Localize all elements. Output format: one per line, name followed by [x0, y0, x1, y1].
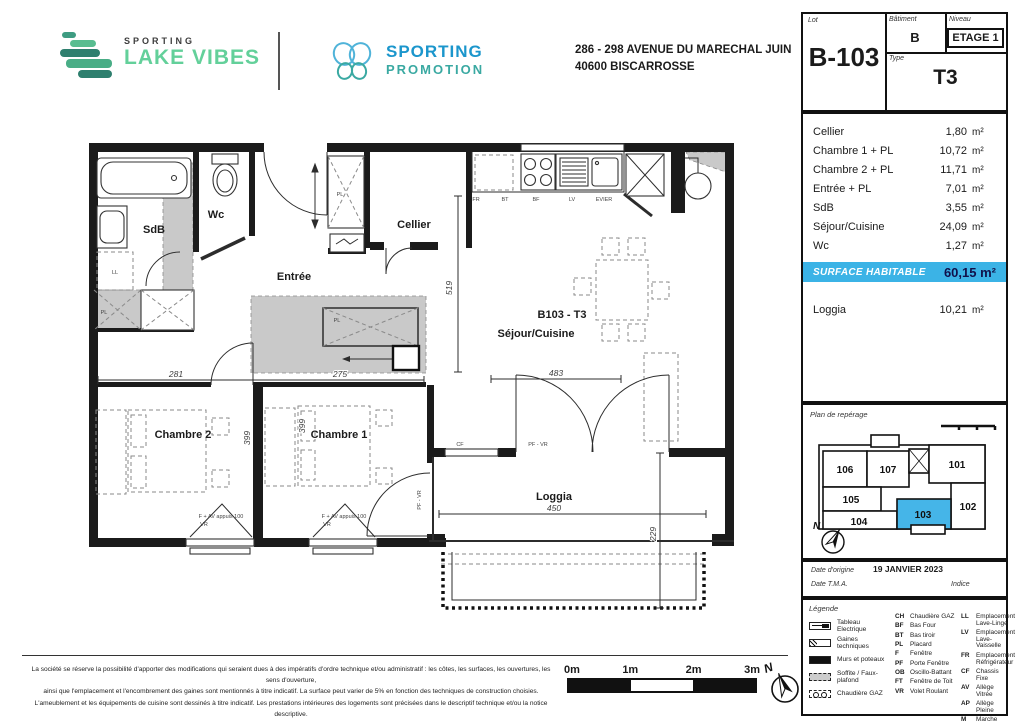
- svg-text:229: 229: [648, 527, 658, 542]
- batiment-value: B: [885, 30, 945, 45]
- murs-poteaux-icon: [809, 656, 831, 664]
- surface-habitable-value: 60,15 m²: [944, 265, 996, 280]
- toilet-icon: [212, 154, 238, 196]
- kitchen-counter: [472, 152, 664, 196]
- lakevibes-wordmark: LAKE VIBES: [124, 46, 260, 70]
- unit-title: B103 - T3: [538, 309, 587, 321]
- svg-text:483: 483: [549, 368, 563, 378]
- floorplan-drawing: SdB Wc Entrée Cellier B103 - T3 Séjour/C…: [84, 138, 744, 618]
- bedroom-walls: [98, 382, 426, 540]
- svg-text:CF: CF: [456, 442, 464, 448]
- date-origine-label: Date d'origine: [811, 567, 873, 574]
- unit-102: 102: [960, 502, 977, 513]
- chaudiere-gaz-icon: [809, 690, 831, 698]
- svg-text:PF - VR: PF - VR: [528, 442, 548, 448]
- niveau-label: Niveau: [949, 16, 971, 23]
- mini-scale-icon: [941, 426, 995, 430]
- disclaimer-text: La société se réserve la possibilité d'a…: [24, 664, 558, 720]
- unit-106: 106: [837, 465, 854, 476]
- svg-text:N: N: [762, 660, 775, 676]
- lakevibes-stones-icon: [58, 32, 118, 78]
- footer-rule: [22, 655, 788, 656]
- unit-104: 104: [851, 517, 868, 528]
- room-label-wc: Wc: [208, 209, 225, 221]
- scale-bar-segments: [567, 678, 757, 693]
- table-row: Chambre 2 + PL11,71m²: [803, 164, 1006, 183]
- svg-text:450: 450: [547, 503, 561, 513]
- promotion-wordmark-1: SPORTING: [386, 42, 484, 62]
- table-row: Entrée + PL7,01m²: [803, 183, 1006, 202]
- indice-label: Indice: [951, 581, 970, 588]
- scale-bar: 0m 1m 2m 3m: [567, 664, 757, 694]
- promotion-wordmark-2: PROMOTION: [386, 62, 484, 77]
- svg-text:FR: FR: [472, 197, 479, 203]
- svg-text:PL: PL: [334, 318, 341, 324]
- svg-text:F + AV appuis 100: F + AV appuis 100: [199, 514, 244, 520]
- legend-item: Murs et poteaux: [809, 651, 889, 668]
- niveau-value: ETAGE 1: [947, 28, 1004, 48]
- loggia-row: Loggia 10,21 m²: [803, 304, 1006, 323]
- svg-text:N: N: [813, 521, 821, 532]
- reperage-title: Plan de repérage: [810, 410, 868, 419]
- date-origine-value: 19 JANVIER 2023: [873, 564, 943, 574]
- bathtub-icon: [97, 158, 191, 198]
- legend-item: Tableau Electrique: [809, 617, 889, 634]
- svg-text:LV: LV: [569, 197, 576, 203]
- lot-info-box: Lot B-103 Bâtiment B Niveau ETAGE 1 Type…: [801, 12, 1008, 112]
- svg-text:PF - VR: PF - VR: [417, 490, 423, 510]
- type-label: Type: [889, 55, 904, 62]
- svg-text:BT: BT: [501, 197, 509, 203]
- unit-105: 105: [843, 495, 860, 506]
- table-row: Wc1,27m²: [803, 240, 1006, 259]
- svg-text:399: 399: [297, 419, 307, 433]
- reperage-compass-icon: N: [809, 517, 853, 559]
- svg-text:F + AV appuis 100: F + AV appuis 100: [322, 514, 367, 520]
- loggia-structure: [429, 457, 734, 608]
- table-row: Chambre 1 + PL10,72m²: [803, 145, 1006, 164]
- surface-habitable-label: SURFACE HABITABLE: [813, 267, 944, 278]
- legend-box: Légende Tableau Electrique Gaines techni…: [801, 598, 1008, 716]
- unit-101: 101: [949, 460, 966, 471]
- room-label-loggia: Loggia: [536, 491, 573, 503]
- surface-habitable-row: SURFACE HABITABLE 60,15 m²: [803, 262, 1006, 282]
- svg-text:EVIER: EVIER: [596, 197, 613, 203]
- unit-subtitle: Séjour/Cuisine: [497, 328, 574, 340]
- svg-text:399: 399: [242, 431, 252, 445]
- svg-text:PL: PL: [101, 310, 108, 316]
- washbasin-icon: [97, 206, 127, 248]
- north-compass-icon: N: [758, 658, 808, 710]
- butterfly-icon: [328, 38, 376, 86]
- legend-title: Légende: [809, 604, 838, 613]
- type-value: T3: [885, 66, 1006, 90]
- room-label-entree: Entrée: [277, 271, 311, 283]
- floorplan-sheet: { "header": { "brand_small": "SPORTING",…: [0, 0, 1024, 725]
- entry-arrow-icon: [312, 164, 318, 228]
- address-line-1: 286 - 298 AVENUE DU MARECHAL JUIN: [575, 42, 791, 59]
- svg-text:275: 275: [332, 369, 347, 379]
- room-label-chambre1: Chambre 1: [311, 429, 368, 441]
- legend-item: Gaines techniques: [809, 634, 889, 651]
- table-row: Cellier1,80m²: [803, 126, 1006, 145]
- lot-number: B-103: [803, 42, 885, 73]
- svg-text:VR: VR: [323, 522, 331, 528]
- reperage-box: Plan de repérage 106 107 101 105 102 104…: [801, 403, 1008, 560]
- project-address: 286 - 298 AVENUE DU MARECHAL JUIN 40600 …: [575, 42, 791, 75]
- svg-text:PL: PL: [337, 192, 344, 198]
- soffite-icon: [809, 673, 831, 681]
- unit-103-highlight: 103: [915, 510, 932, 521]
- svg-text:519: 519: [444, 281, 454, 295]
- unit-107: 107: [880, 465, 897, 476]
- table-row: SdB3,55m²: [803, 202, 1006, 221]
- areas-table-box: Cellier1,80m² Chambre 1 + PL10,72m² Cham…: [801, 112, 1008, 403]
- batiment-label: Bâtiment: [889, 16, 917, 23]
- legend-abbr-col2: LLEmplacement Lave-Linge LVEmplacement L…: [961, 614, 1009, 726]
- legend-abbr-col1: CHChaudière GAZ BFBas Four BTBas tiroir …: [895, 614, 961, 698]
- lot-label: Lot: [808, 17, 818, 24]
- dates-box: Date d'origine 19 JANVIER 2023 Date T.M.…: [801, 560, 1008, 598]
- svg-text:LL: LL: [112, 270, 118, 276]
- lakevibes-wordmark-top: SPORTING: [124, 36, 260, 46]
- address-line-2: 40600 BISCARROSSE: [575, 59, 791, 76]
- header-divider: [278, 32, 280, 90]
- gaines-techniques-icon: [809, 639, 831, 647]
- legend-item: Soffite / Faux-plafond: [809, 668, 889, 685]
- legend-item: Chaudière GAZ: [809, 685, 889, 702]
- room-label-chambre2: Chambre 2: [155, 429, 212, 441]
- svg-text:BF: BF: [532, 197, 540, 203]
- svg-text:281: 281: [168, 369, 183, 379]
- dining-table: [574, 238, 669, 341]
- date-tma-label: Date T.M.A.: [811, 581, 951, 588]
- room-label-sdb: SdB: [143, 224, 165, 236]
- svg-text:VR: VR: [200, 522, 208, 528]
- table-row: Séjour/Cuisine24,09m²: [803, 221, 1006, 240]
- room-label-cellier: Cellier: [397, 219, 431, 231]
- tableau-electrique-icon: [809, 622, 831, 630]
